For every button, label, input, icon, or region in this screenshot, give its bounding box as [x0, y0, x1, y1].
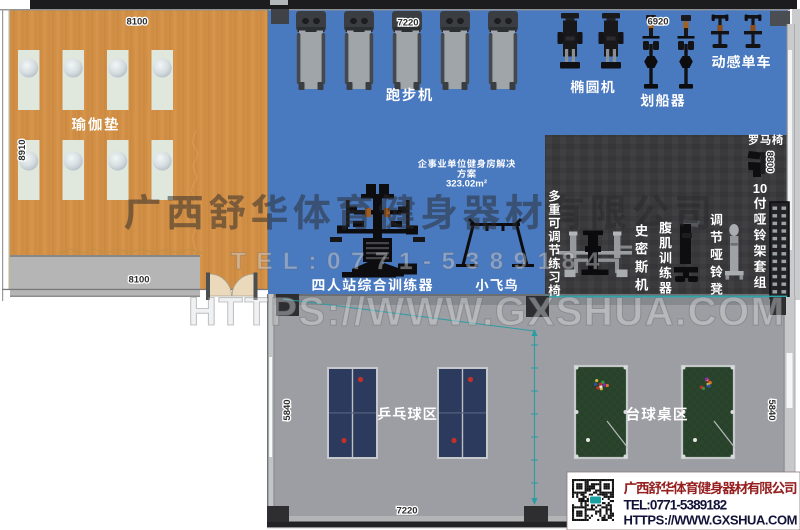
svg-text:5840: 5840 — [282, 399, 293, 420]
svg-text:6920: 6920 — [647, 16, 668, 27]
svg-text:7220: 7220 — [396, 505, 417, 516]
svg-text:8800: 8800 — [764, 151, 775, 172]
svg-text:TEL:0771-5389182: TEL:0771-5389182 — [624, 498, 727, 513]
svg-text:HTTPS://WWW.GXSHUA.COM: HTTPS://WWW.GXSHUA.COM — [188, 290, 785, 334]
svg-text:7220: 7220 — [397, 17, 418, 28]
svg-text:10: 10 — [753, 181, 767, 196]
svg-text:8100: 8100 — [126, 16, 147, 27]
svg-text:8910: 8910 — [17, 139, 28, 160]
svg-text:323.02m²: 323.02m² — [446, 179, 487, 190]
svg-text:5840: 5840 — [766, 399, 777, 420]
svg-text:8100: 8100 — [128, 274, 149, 285]
svg-text:HTTPS://WWW.GXSHUA.COM: HTTPS://WWW.GXSHUA.COM — [624, 513, 798, 528]
